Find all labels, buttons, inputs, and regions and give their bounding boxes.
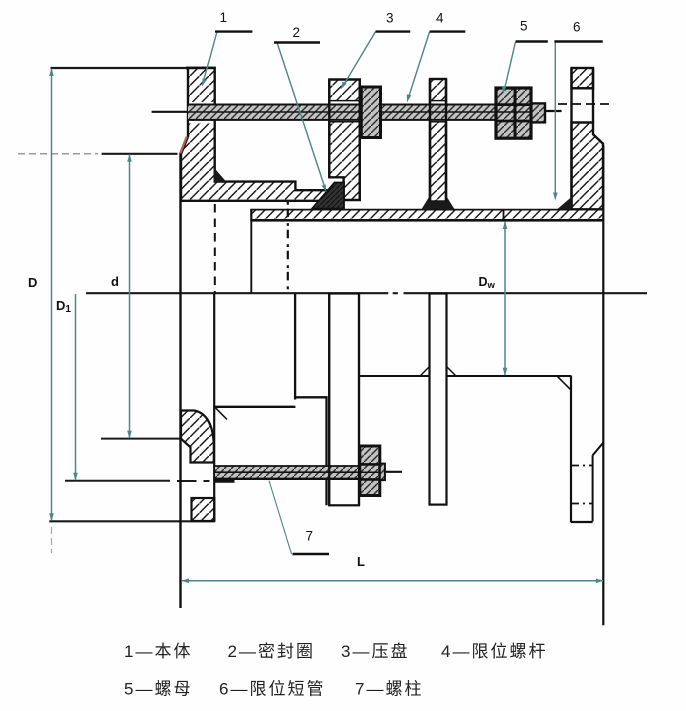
svg-text:d: d	[111, 274, 119, 289]
svg-text:D: D	[28, 275, 37, 290]
svg-text:4: 4	[436, 11, 444, 26]
svg-text:5—螺母: 5—螺母	[124, 680, 192, 699]
svg-text:6—限位短管: 6—限位短管	[219, 680, 325, 699]
svg-text:5: 5	[520, 19, 528, 34]
svg-text:2: 2	[293, 25, 301, 40]
svg-text:L: L	[357, 554, 365, 569]
svg-text:3: 3	[386, 11, 394, 26]
svg-text:7: 7	[306, 529, 314, 544]
svg-text:1—本体: 1—本体	[124, 642, 192, 661]
svg-text:2—密封圈: 2—密封圈	[228, 642, 315, 661]
svg-text:7—螺柱: 7—螺柱	[355, 680, 423, 699]
svg-text:1: 1	[220, 10, 228, 25]
svg-text:6: 6	[573, 19, 581, 34]
svg-text:3—压盘: 3—压盘	[341, 642, 409, 661]
svg-text:4—限位螺杆: 4—限位螺杆	[441, 642, 547, 661]
